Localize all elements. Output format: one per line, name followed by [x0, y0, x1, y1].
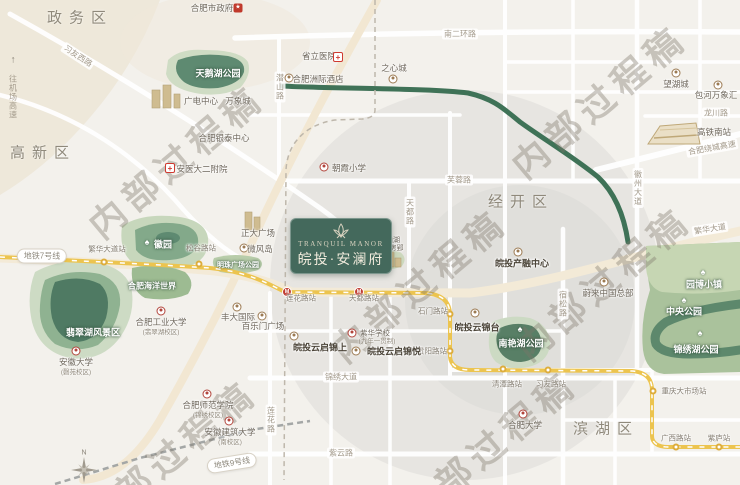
station-marker — [500, 366, 507, 373]
park-mingzhu: 明珠广场公园 — [217, 260, 259, 270]
poi-zhixincheng: 之心城 — [381, 62, 407, 74]
brand-icon — [471, 309, 480, 318]
station-marker — [447, 348, 454, 355]
park-tianehu: 天鹅湖公园 — [195, 67, 240, 80]
tree-icon: ♠ — [518, 324, 523, 334]
station-marker — [716, 444, 723, 451]
station-lianhualu: 莲花路站 — [286, 293, 316, 304]
station-marker — [545, 367, 552, 374]
station-dashichang: 重庆大市场站 — [662, 386, 707, 397]
hospital-icon: + — [165, 163, 175, 173]
road-tiandulu: 天都路 — [405, 197, 416, 228]
park-feicuihu: 翡翠湖风景区 — [66, 326, 120, 339]
poi-hefeidaxue: 合肥大学 — [508, 419, 542, 431]
poi-bailemen: 百乐门广场 — [242, 320, 285, 332]
project-name-cn: 皖投·安澜府 — [291, 249, 391, 269]
poi-wanghucheng: 望湖城 — [663, 78, 689, 90]
university-icon — [72, 347, 81, 356]
station-xiyoulu: 习友路站 — [536, 379, 566, 390]
mall-icon — [389, 75, 398, 84]
road-ziyunlu: 紫云路 — [327, 448, 355, 459]
station-guiyanglu: 贵阳路站 — [417, 346, 447, 357]
poi-wanxiangcheng: 万象城 — [225, 95, 251, 107]
tree-icon: ♠ — [145, 237, 150, 247]
poi-yunqijinyue: 皖投云启锦悦 — [367, 345, 421, 358]
station-marker — [650, 388, 657, 395]
district-binhu: 滨湖区 — [573, 418, 639, 439]
university-icon — [157, 307, 166, 316]
road-jinxiudadao: 锦绣大道 — [323, 372, 359, 383]
poi-hegongda-sub: (翡翠湖校区) — [143, 326, 180, 336]
poi-zhaoxia: 朝霞小学 — [332, 162, 366, 174]
brand-icon — [352, 347, 361, 356]
hospital-icon: + — [333, 52, 343, 62]
poi-guangdian: 广电中心 — [184, 95, 218, 107]
park-zhongyang: 中央公园 — [666, 305, 702, 318]
university-icon — [203, 390, 212, 399]
district-zhengwu: 政务区 — [47, 7, 113, 28]
station-marker — [673, 444, 680, 451]
brand-icon — [600, 278, 609, 287]
poi-yunqijinshang: 皖投云启锦上 — [293, 341, 347, 354]
poi-shizhengfu: 合肥市政府 — [191, 2, 234, 14]
university-icon — [519, 410, 528, 419]
road-wangjichang: 往机场高速 — [8, 73, 19, 122]
park-haiyang: 合肥海洋世界 — [128, 281, 176, 292]
poi-zihua-sub: (九年一贯制) — [359, 335, 396, 345]
station-tiandulu: 天都路站 — [349, 293, 379, 304]
station-qingtanlu: 清潭路站 — [492, 379, 522, 390]
station-songgulu: 松谷路站 — [186, 243, 216, 254]
poi-jianda-sub: (南校区) — [218, 436, 242, 446]
station-marker — [196, 261, 203, 268]
road-lianhualu: 莲花路 — [266, 405, 277, 436]
tree-icon: ♠ — [682, 295, 687, 305]
station-shimenlu: 石门路站 — [418, 306, 448, 317]
poi-weilai: 蔚来中国总部 — [582, 287, 633, 299]
metro-line7-badge: 地铁7号线 — [17, 249, 67, 264]
station-guangxilu: 广西路站 — [661, 433, 691, 444]
airport-arrow-icon: ↑ — [11, 55, 16, 66]
government-icon: ★ — [234, 4, 243, 13]
school-icon — [320, 163, 329, 172]
compass-north-label: N — [81, 450, 86, 457]
train-illustration — [648, 123, 700, 144]
poi-gaotienanzhan: 高铁南站 — [697, 126, 731, 138]
road-longchuanlu: 龙川路 — [702, 108, 730, 119]
brand-icon — [514, 248, 523, 257]
poi-anda-sub: (磬苑校区) — [61, 366, 91, 376]
road-huizhoudadao: 徽州大道 — [633, 168, 644, 208]
park-jinxiuhu: 锦绣湖公园 — [673, 343, 718, 356]
station-fanhuadadao: 繁华大道站 — [88, 244, 126, 255]
project-name-en: TRANQUIL MANOR — [291, 240, 391, 248]
station-zilu: 紫庐站 — [708, 433, 731, 444]
park-nanyanhu: 南艳湖公园 — [498, 337, 543, 350]
school-icon — [348, 329, 357, 338]
station-marker — [101, 259, 108, 266]
road-nanerhuan: 南二环路 — [442, 29, 478, 40]
poi-shifan-sub: (锦绣校区) — [193, 409, 223, 419]
poi-weifengdao: 微风岛 — [247, 243, 273, 255]
poi-yintai: 合肥银泰中心 — [198, 132, 249, 144]
tree-icon: ♠ — [701, 267, 706, 277]
brand-icon — [290, 332, 299, 341]
poi-shengli: 省立医院 — [302, 50, 336, 62]
district-gaoxin: 高新区 — [10, 142, 76, 163]
poi-yunjintai: 皖投云锦台 — [454, 321, 499, 334]
poi-zhengda: 正大广场 — [241, 227, 275, 239]
tree-icon: ♠ — [698, 328, 703, 338]
road-susonglu: 宿松路 — [558, 289, 569, 320]
park-huiyuan: 徽园 — [154, 238, 172, 251]
location-map: 内部过程稿 内部过程稿 内部过程稿 内部过程稿 内部过程稿 内部过程稿 政务区 … — [0, 0, 740, 485]
poi-wanxianghui: 包河万象汇 — [695, 89, 738, 101]
poi-zhouji: 合肥洲际酒店 — [292, 73, 343, 85]
poi-icon — [672, 69, 681, 78]
poi-anyida: 安医大二附院 — [176, 163, 227, 175]
district-jingkai: 经开区 — [488, 191, 554, 212]
poi-chanrong: 皖投产融中心 — [495, 257, 549, 270]
project-logo-card: TRANQUIL MANOR 皖投·安澜府 — [290, 218, 392, 274]
road-furonglu: 芙蓉路 — [445, 175, 473, 186]
manor-crest-icon — [291, 222, 391, 240]
university-icon — [225, 417, 234, 426]
park-yuanbo: 园博小镇 — [686, 278, 722, 291]
